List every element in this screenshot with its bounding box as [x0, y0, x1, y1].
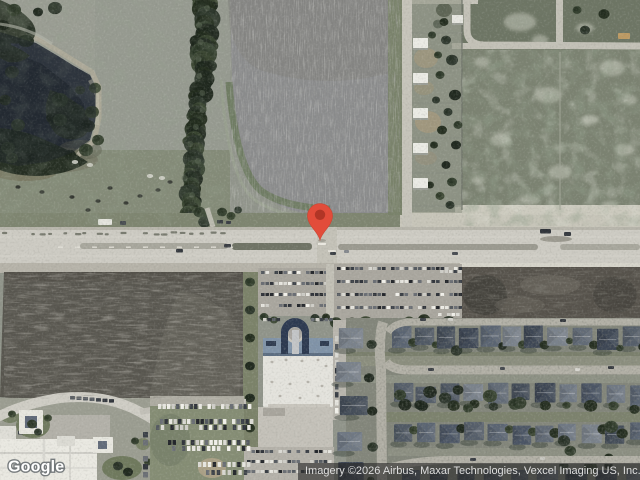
- svg-text:Google: Google: [8, 459, 64, 476]
